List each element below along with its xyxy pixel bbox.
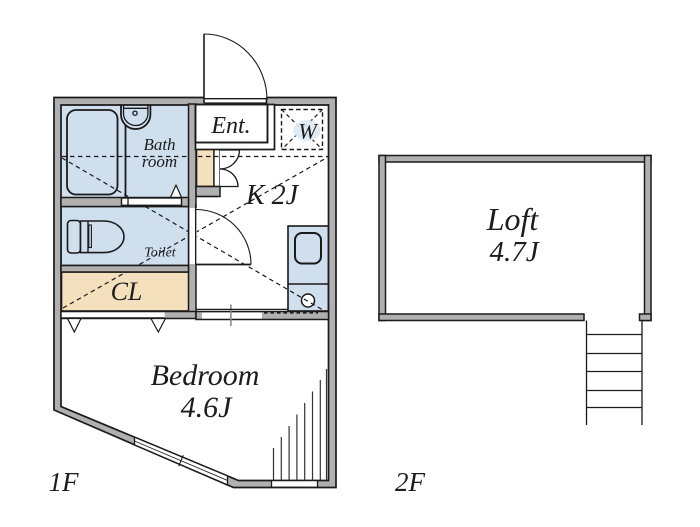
svg-text:4.7J: 4.7J bbox=[489, 236, 539, 268]
svg-text:room: room bbox=[142, 152, 177, 171]
svg-text:K 2J: K 2J bbox=[245, 180, 300, 211]
svg-text:4.6J: 4.6J bbox=[181, 391, 234, 424]
svg-text:Loft: Loft bbox=[486, 201, 540, 237]
svg-text:1F: 1F bbox=[49, 467, 80, 497]
svg-text:Bedroom: Bedroom bbox=[151, 359, 260, 392]
svg-text:Ent.: Ent. bbox=[210, 113, 250, 139]
svg-text:CL: CL bbox=[111, 277, 143, 306]
svg-text:W: W bbox=[298, 119, 318, 144]
svg-text:Toilet: Toilet bbox=[144, 246, 176, 261]
svg-text:2F: 2F bbox=[395, 467, 426, 497]
